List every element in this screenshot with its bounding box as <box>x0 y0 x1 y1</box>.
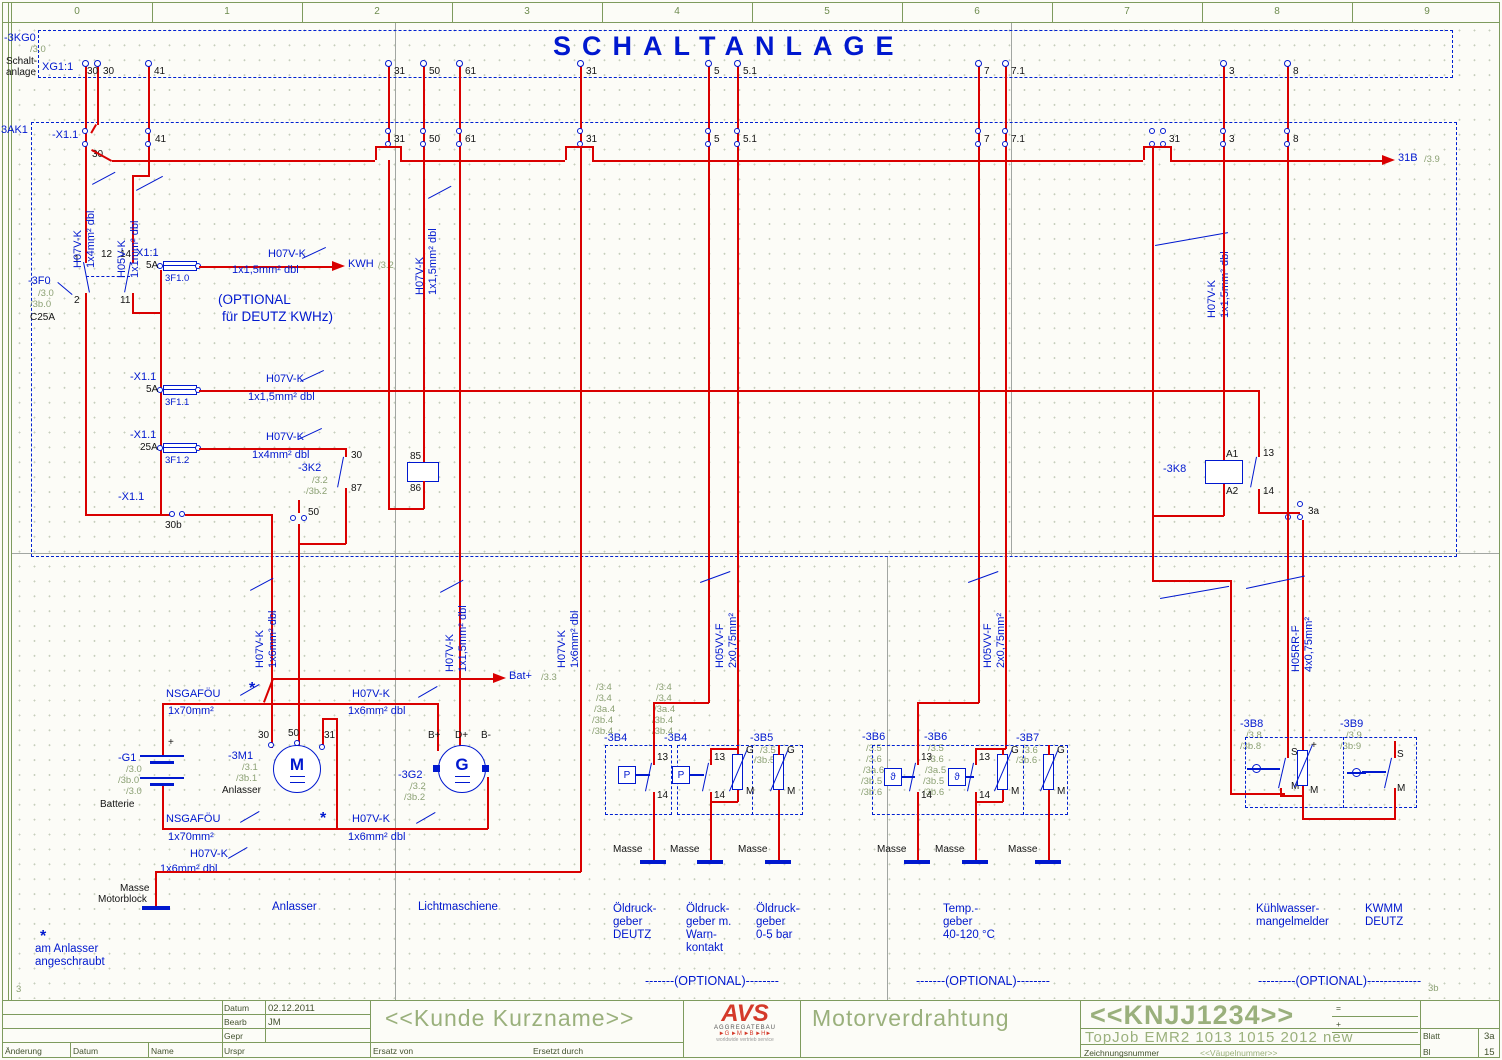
ruler-label: 5 <box>752 6 902 17</box>
device-tag-3b5: -3B5 <box>750 733 773 745</box>
sensor-letter: P <box>624 770 631 781</box>
wire <box>1152 515 1224 517</box>
wire-size: 1x6mm² dbl <box>160 864 217 876</box>
device-desc: Schalt- <box>6 57 37 67</box>
sensor-box-divider <box>1343 737 1344 808</box>
wire-spec: H07V-K1x1,5mm² dbl <box>414 228 440 295</box>
terminal-strip: -X1.1 <box>130 372 156 384</box>
pin-label: 14 <box>979 791 990 801</box>
wire-type: H07V-K <box>1206 251 1219 318</box>
xref: /3.0 <box>30 45 46 56</box>
titleblock-line <box>148 1042 149 1058</box>
field-label-zeichnungsnummer: Zeichnungsnummer <box>1084 1048 1159 1058</box>
pin-label: M <box>746 787 754 797</box>
titleblock-line <box>2 1014 370 1015</box>
generator-terminal <box>482 765 489 772</box>
caption-line: geber m. <box>686 916 731 929</box>
terminal <box>456 128 462 134</box>
caption-line: Öldruck- <box>686 903 731 916</box>
wire <box>975 748 977 765</box>
terminal <box>420 60 427 67</box>
connector-name-xg1: XG1:1 <box>42 62 73 74</box>
caption-optional: -------(OPTIONAL)-------- <box>916 975 1050 988</box>
wire <box>975 801 1003 803</box>
temp-sensor-symbol: ϑ <box>884 768 902 786</box>
signal-31b: 31B <box>1398 153 1418 165</box>
wire-size: 1x1,5mm² dbl <box>232 265 299 277</box>
titleblock-line <box>1080 1000 1081 1058</box>
device-desc: anlage <box>6 68 36 78</box>
wire-size: 4x0,75mm² <box>1303 617 1316 672</box>
wire-type: H07V-K <box>444 605 457 672</box>
pin-label: G <box>1011 746 1019 756</box>
terminal-label: 3a <box>1308 507 1319 517</box>
generator-terminal <box>433 765 440 772</box>
terminal <box>290 515 296 521</box>
wire <box>336 718 338 829</box>
terminal <box>975 60 982 67</box>
ruler-label: 3 <box>452 6 602 17</box>
frame-line <box>2 2 3 1058</box>
wire-spec: H05VV-F2x0,75mm² <box>982 613 1008 668</box>
wire <box>162 784 164 829</box>
terminal <box>319 744 325 750</box>
wire <box>1280 795 1304 797</box>
wire-size: 1x4mm² dbl <box>252 450 309 462</box>
terminal <box>1220 141 1226 147</box>
avs-logo-tagline: worldwide vertrieb service <box>700 1037 790 1043</box>
terminal-label: B+ <box>428 731 441 741</box>
wire <box>1152 580 1231 582</box>
signal-bat: Bat+ <box>509 671 532 683</box>
wire <box>148 63 150 148</box>
terminal <box>1220 128 1226 134</box>
terminal-label: 31 <box>586 67 597 77</box>
terminal-label: 30b <box>165 521 182 531</box>
titleblock-line <box>1420 1000 1421 1058</box>
terminal-label: 5.1 <box>743 135 757 145</box>
sensor-letter: P <box>678 770 685 781</box>
avs-logo-text: AVS <box>700 1003 790 1025</box>
terminal-label: B- <box>481 731 491 741</box>
frame-line <box>2 22 1499 23</box>
ground-symbol <box>697 860 723 864</box>
wire <box>388 63 390 148</box>
frame-line <box>11 2 12 1000</box>
terminal <box>734 60 741 67</box>
wire-type: H05VV-F <box>982 613 995 668</box>
customer-name: <<Kunde Kurzname>> <box>385 1005 634 1032</box>
pin-label: M <box>1310 786 1318 796</box>
frame-line <box>8 2 9 1000</box>
titleblock-line <box>70 1042 71 1058</box>
terminal <box>385 60 392 67</box>
sensor-box-divider <box>1023 745 1024 815</box>
terminal <box>705 141 711 147</box>
wire-spec: H07V-K1x1,5mm² dbl <box>444 605 470 672</box>
note-star: * <box>320 810 326 828</box>
caption-line: 0-5 bar <box>756 929 799 942</box>
sensor-link <box>690 774 704 776</box>
schematic-page: 0 1 2 3 4 5 6 7 8 9 3 3b SCHALTANLAGE -3… <box>0 0 1502 1060</box>
terminal <box>975 141 981 147</box>
wire <box>1287 63 1289 148</box>
terminal-label: 30 <box>87 67 98 77</box>
terminal-label: 30 <box>258 731 269 741</box>
field-label-urspr: Urspr <box>224 1046 245 1056</box>
wire-size: 1x6mm² dbl <box>267 611 280 668</box>
terminal <box>145 60 152 67</box>
device-tag-3k2: -3K2 <box>298 463 321 475</box>
ground-label: Masse <box>877 845 906 855</box>
titleblock-line <box>1478 1028 1479 1058</box>
titleblock-line <box>2 1042 683 1043</box>
wire <box>1223 148 1225 460</box>
caption-oel1: Öldruck-geberDEUTZ <box>613 903 656 942</box>
xref: /3b.1 <box>236 774 257 785</box>
optional-note: (OPTIONAL <box>218 293 291 306</box>
pin-label: 30 <box>351 451 362 461</box>
terminal <box>705 128 711 134</box>
sensor-box <box>1245 737 1417 808</box>
terminal-label: 8 <box>1293 135 1299 145</box>
wire-type: NSGAFÖU <box>166 814 220 826</box>
frame-line <box>1499 2 1500 1058</box>
fuse-rating: 25A <box>140 443 158 453</box>
ground-label: Masse <box>120 884 149 894</box>
wire-size: 1x70mm² <box>168 832 214 844</box>
terminal-label: 3 <box>1229 135 1235 145</box>
terminal <box>1149 128 1155 134</box>
terminal <box>1002 128 1008 134</box>
titleblock-line <box>265 1000 266 1042</box>
sensor-link <box>1362 771 1386 773</box>
battery-plate <box>150 761 174 764</box>
caption-optional: ---------(OPTIONAL)------------- <box>1258 975 1421 988</box>
wire-type: H07V-K <box>254 611 267 668</box>
pin-label: 86 <box>410 484 421 494</box>
wire-type: H05V-K <box>116 221 129 278</box>
motor-letter: M <box>290 755 304 775</box>
pin-label: M <box>787 787 795 797</box>
pin-label: M <box>1011 787 1019 797</box>
pin-label: 2 <box>74 296 80 306</box>
wire <box>710 801 712 861</box>
ground-label: Masse <box>613 845 642 855</box>
caption-line: geber <box>943 916 995 929</box>
wire-size: 1x6mm² dbl <box>348 706 405 718</box>
wire <box>1230 580 1232 794</box>
terminal <box>1160 128 1166 134</box>
device-desc: Anlasser <box>222 786 261 796</box>
field-value-bl: 15 <box>1484 1047 1495 1058</box>
terminal <box>1284 60 1291 67</box>
ruler-label: 4 <box>602 6 752 17</box>
wire <box>132 293 134 312</box>
terminal <box>705 60 712 67</box>
wire-size: 1x4mm² dbl <box>85 211 98 268</box>
wire <box>1223 484 1225 516</box>
pin-label: 14 <box>657 791 668 801</box>
structure-eq: = <box>1336 1003 1341 1013</box>
drawing-title: SCHALTANLAGE <box>553 31 904 62</box>
generator-letter: G <box>455 755 468 775</box>
pin-label: S <box>1397 750 1404 760</box>
wire-size: 1x1,5mm² dbl <box>427 228 440 295</box>
wire <box>388 160 390 509</box>
wire <box>975 801 977 861</box>
wire-type: H05VV-F <box>714 613 727 668</box>
ground-symbol <box>142 906 170 910</box>
pin-label: M <box>1397 784 1405 794</box>
terminal-label: 50 <box>429 67 440 77</box>
pin-label: G <box>746 746 754 756</box>
wire <box>298 524 300 544</box>
wire <box>1394 741 1396 758</box>
terminal <box>294 740 300 746</box>
sensor-letter: ϑ <box>954 772 959 783</box>
footnote-line: am Anlasser <box>35 943 105 956</box>
terminal <box>975 128 981 134</box>
wire <box>423 481 425 509</box>
wire <box>580 148 582 872</box>
fuse-tag: 3F1.1 <box>165 398 189 408</box>
sensor-link <box>1262 768 1280 770</box>
terminal <box>82 141 88 147</box>
pin-label: 14 <box>1263 487 1274 497</box>
field-label-bl: Bl <box>1423 1047 1431 1057</box>
terminal <box>734 141 740 147</box>
field-label-ersetzt-durch: Ersetzt durch <box>533 1046 583 1056</box>
fuse-rating: 5A <box>146 385 158 395</box>
terminal <box>301 515 307 521</box>
wire <box>1143 146 1145 160</box>
wire <box>778 790 780 861</box>
xref: /3.2 <box>378 261 394 272</box>
wire <box>1048 745 1050 755</box>
wire-type: H05RR-F <box>1290 617 1303 672</box>
wire-spec: H07V-K1x1,5mm² dbl <box>1206 251 1232 318</box>
wire <box>298 500 300 513</box>
terminal-strip: -X1.1 <box>118 492 144 504</box>
wire <box>710 801 738 803</box>
wire <box>917 792 919 861</box>
ground-symbol <box>640 860 666 864</box>
wire <box>978 63 980 148</box>
wire <box>272 678 493 680</box>
wire <box>917 702 979 704</box>
caption-line: 40-120 °C <box>943 929 995 942</box>
pin-label: 14 <box>921 791 932 801</box>
wire <box>400 160 565 162</box>
xref: /3.0 <box>126 787 142 798</box>
wire <box>437 703 439 751</box>
wire <box>132 312 162 314</box>
xref: /3b.2 <box>404 793 425 804</box>
terminal <box>456 60 463 67</box>
terminal-label: 50 <box>288 729 299 739</box>
fuse-tag: 3F1.0 <box>165 274 189 284</box>
wire-size: 2x0,75mm² <box>995 613 1008 668</box>
wire <box>132 175 150 177</box>
caption-kwmm: KWMMDEUTZ <box>1365 903 1403 929</box>
terminal <box>420 141 426 147</box>
wire <box>1258 512 1300 514</box>
field-label-datum2: Datum <box>73 1046 98 1056</box>
pin-label: + <box>1311 741 1317 751</box>
pin-label: G <box>787 746 795 756</box>
terminal <box>1002 60 1009 67</box>
wire <box>487 777 489 829</box>
wire <box>388 508 424 510</box>
field-label-blatt: Blatt <box>1423 1031 1440 1041</box>
terminal-label: 7.1 <box>1011 67 1025 77</box>
terminal-label: 50 <box>429 135 440 145</box>
starter-motor-symbol: M <box>273 745 321 793</box>
terminal-label: 7 <box>984 135 990 145</box>
caption-lichtmaschine: Lichtmaschiene <box>418 901 498 914</box>
caption-anlasser: Anlasser <box>272 901 317 914</box>
wire-type: H07V-K <box>72 211 85 268</box>
device-desc: Batterie <box>100 800 134 810</box>
device-tag-3ak1: 3AK1 <box>1 125 28 137</box>
ground-symbol <box>904 860 930 864</box>
battery-plate <box>150 783 174 786</box>
wire-type: H07V-K <box>556 611 569 668</box>
fuse-tag: 3F1.2 <box>165 456 189 466</box>
caption-oel3: Öldruck-geber0-5 bar <box>756 903 799 942</box>
system-name: TopJob EMR2 1013 1015 2012 new <box>1085 1029 1354 1046</box>
relay-coil <box>407 462 439 482</box>
wire <box>653 792 655 861</box>
wire <box>85 514 171 516</box>
terminal <box>179 511 185 517</box>
wire <box>1258 390 1260 457</box>
wire-spec: H07V-K1x6mm² dbl <box>254 611 280 668</box>
wire-spec: H05RR-F4x0,75mm² <box>1290 617 1316 672</box>
temp-sensor-symbol: ϑ <box>948 768 966 786</box>
terminal <box>145 128 151 134</box>
wire <box>1230 793 1285 795</box>
wire-size: 1x1,5mm² dbl <box>457 605 470 672</box>
pin-label: 13 <box>714 753 725 763</box>
footnote-line: angeschraubt <box>35 956 105 969</box>
wire-spec: H07V-K1x4mm² dbl <box>72 211 98 268</box>
caption-line: Temp.- <box>943 903 995 916</box>
caption-line: Öldruck- <box>756 903 799 916</box>
wire <box>199 390 1259 392</box>
wire <box>592 160 1143 162</box>
wire <box>375 146 377 160</box>
field-value-bearb: JM <box>268 1017 281 1028</box>
pin-label: A1 <box>1226 450 1238 460</box>
terminal <box>734 128 740 134</box>
wire-size: 1x1,5mm² dbl <box>1219 251 1232 318</box>
terminal-strip-x11: -X1.1 <box>52 130 78 142</box>
wire <box>917 702 919 765</box>
caption-line: geber <box>756 916 799 929</box>
wire <box>978 148 980 703</box>
terminal-label: 41 <box>154 67 165 77</box>
pin-label: 14 <box>714 791 725 801</box>
device-tag-3b4: -3B4 <box>604 733 627 745</box>
generator-symbol: G <box>438 745 486 793</box>
terminal-label: 31 <box>324 731 335 741</box>
terminal-label: 3 <box>1229 67 1235 77</box>
wire <box>155 871 157 907</box>
wire <box>1048 790 1050 861</box>
terminal <box>82 128 88 134</box>
ak1-enclosure-box <box>31 122 1457 557</box>
terminal <box>1220 60 1227 67</box>
caption-oel2: Öldruck-geber m.Warn-kontakt <box>686 903 731 955</box>
field-label-ersatz-von: Ersatz von <box>373 1046 413 1056</box>
wire-type: H07V-K <box>266 374 304 386</box>
wire <box>1005 63 1007 148</box>
sensor-letter: ϑ <box>890 772 895 783</box>
drawing-number: <<KNJJ1234>> <box>1090 1000 1294 1031</box>
pin-label: 11 <box>120 296 130 306</box>
ground-label: Masse <box>738 845 767 855</box>
titleblock-line <box>683 1000 684 1058</box>
wire-size: 1x70mm² <box>168 706 214 718</box>
battery-plus: + <box>168 738 174 748</box>
wire <box>653 702 709 704</box>
wire <box>298 543 300 748</box>
relay-coil <box>1205 460 1243 484</box>
field-value-blatt: 3a <box>1484 1031 1495 1042</box>
terminal <box>1284 128 1290 134</box>
wire-type: NSGAFÖU <box>166 689 220 701</box>
ground-symbol <box>1035 860 1061 864</box>
wire <box>580 63 582 148</box>
device-tag-3b4: -3B4 <box>664 733 687 745</box>
wire <box>345 488 347 544</box>
terminal <box>577 128 583 134</box>
field-label-name: Name <box>151 1046 174 1056</box>
caption-line: KWMM <box>1365 903 1403 916</box>
wire <box>85 293 87 515</box>
wire <box>162 828 488 830</box>
wire <box>148 148 150 176</box>
wire <box>1223 63 1225 148</box>
terminal-label: 50 <box>308 508 319 518</box>
pin-label: G <box>1057 746 1065 756</box>
wire <box>185 514 272 516</box>
wire-size: 1x6mm² dbl <box>569 611 582 668</box>
wire <box>710 748 712 765</box>
terminal <box>268 742 274 748</box>
pin-label: 13 <box>1263 449 1274 459</box>
caption-line: Warn- <box>686 929 731 942</box>
breaker-rating: C25A <box>30 313 55 323</box>
wire <box>459 63 461 148</box>
optional-note: für DEUTZ KWHz) <box>222 310 333 323</box>
flow-arrow-bat-icon <box>493 673 506 683</box>
terminal-label: 31 <box>394 135 405 145</box>
flow-arrow-31b-icon <box>1382 155 1395 165</box>
footnote: am Anlasserangeschraubt <box>35 943 105 969</box>
terminal <box>385 128 391 134</box>
device-tag-3k8: -3K8 <box>1163 464 1186 476</box>
titleblock-line <box>1332 1016 1418 1017</box>
terminal <box>456 141 462 147</box>
wire <box>1258 489 1260 513</box>
avs-logo: AVS AGGREGATEBAU ►G ►M ►B ►H► worldwide … <box>700 1003 790 1043</box>
fuse-symbol <box>163 261 197 271</box>
caption-line: DEUTZ <box>613 929 656 942</box>
ruler-label: 2 <box>302 6 452 17</box>
